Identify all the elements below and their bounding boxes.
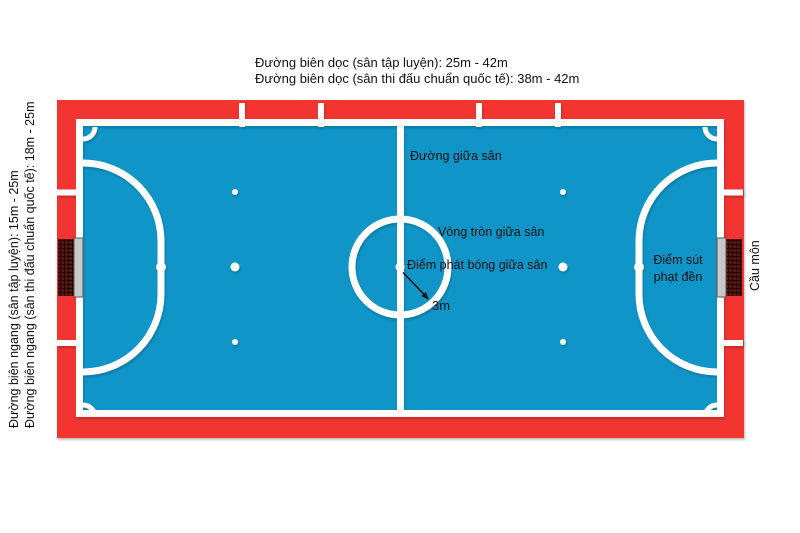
right-second-penalty-spot [559,263,568,272]
kickoff-spot [396,263,405,272]
kickoff-spot-label: Điểm phát bóng giữa sân [407,257,547,273]
right-5m-dot [560,339,566,345]
top-dimension-label: Đường biên dọc (sân tập luyện): 25m - 42… [255,55,579,87]
left-goal-net [58,239,75,296]
right-goal-net [725,239,742,296]
halfway-line-label: Đường giữa sân [410,148,502,164]
left-penalty-spot [156,262,166,272]
left-second-penalty-spot [231,263,240,272]
left-5m-dot [232,189,238,195]
top-dimension-line1: Đường biên dọc (sân tập luyện): 25m - 42… [255,55,579,71]
left-5m-dot [232,339,238,345]
center-circle-label: Vòng tròn giữa sân [438,224,544,240]
left-dimension-line1: Đường biên ngang (sân tập luyện): 15m - … [6,102,22,428]
left-dimension-line2: Đường biên ngang (sân thi đấu chuẩn quốc… [22,102,38,428]
left-dimension-label: Đường biên ngang (sân tập luyện): 15m - … [6,102,38,428]
penalty-spot-label: Điểm sút phạt đền [638,252,718,286]
futsal-court-diagram: Đường biên dọc (sân tập luyện): 25m - 42… [0,0,800,533]
left-goal [58,238,83,297]
right-5m-dot [560,189,566,195]
top-dimension-line2: Đường biên dọc (sân thi đấu chuẩn quốc t… [255,71,579,87]
penalty-spot-line2: phạt đền [638,269,718,286]
circle-radius-label: 3m [432,298,450,314]
penalty-spot-line1: Điểm sút [638,252,718,269]
goal-label: Cầu môn [747,240,763,291]
right-goal [717,238,742,297]
left-goal-frame [74,238,83,297]
right-goal-frame [717,238,726,297]
